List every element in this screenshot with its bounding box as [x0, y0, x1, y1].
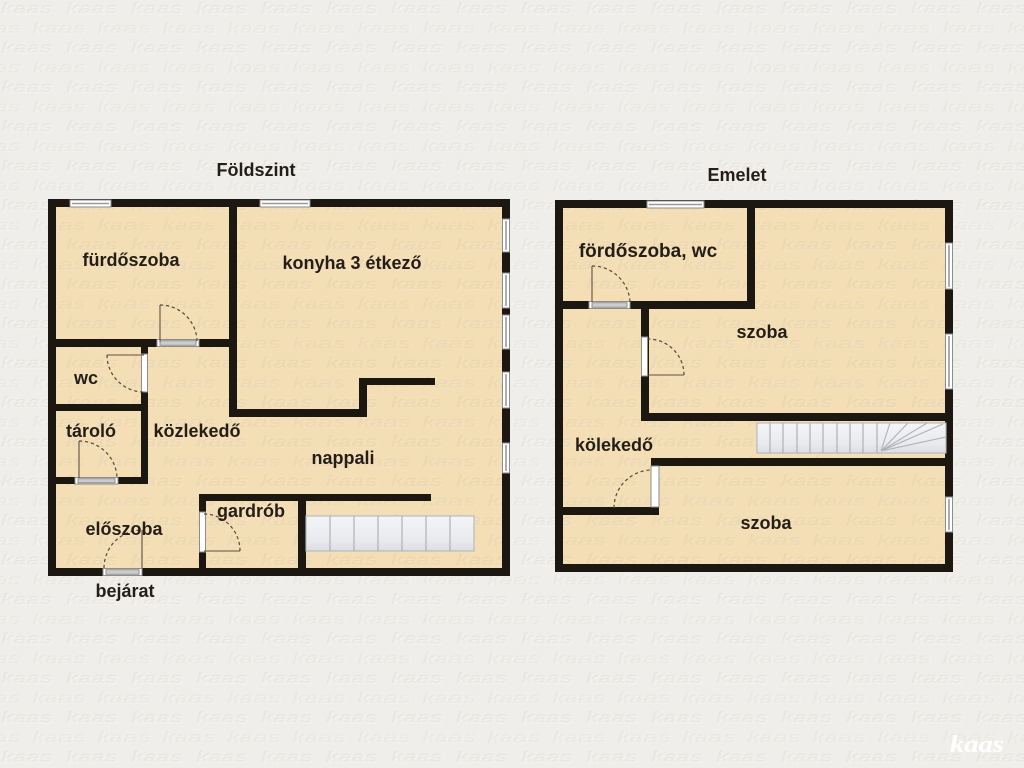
svg-text:fördőszoba, wc: fördőszoba, wc [579, 241, 718, 262]
svg-text:tároló: tároló [66, 421, 116, 441]
svg-text:konyha 3 étkező: konyha 3 étkező [282, 253, 421, 273]
svg-text:gardrób: gardrób [217, 501, 285, 521]
svg-text:Földszint: Földszint [217, 160, 296, 180]
svg-text:kaas: kaas [950, 732, 1004, 758]
svg-text:nappali: nappali [311, 448, 374, 468]
svg-text:bejárat: bejárat [95, 581, 154, 601]
svg-text:szoba: szoba [740, 513, 792, 533]
svg-text:előszoba: előszoba [85, 519, 163, 539]
svg-text:Emelet: Emelet [707, 165, 766, 185]
svg-text:wc: wc [73, 368, 98, 388]
svg-text:közlekedő: közlekedő [153, 421, 240, 441]
svg-text:kölekedő: kölekedő [575, 435, 653, 455]
svg-text:fürdőszoba: fürdőszoba [83, 250, 181, 270]
svg-text:szoba: szoba [736, 322, 788, 342]
